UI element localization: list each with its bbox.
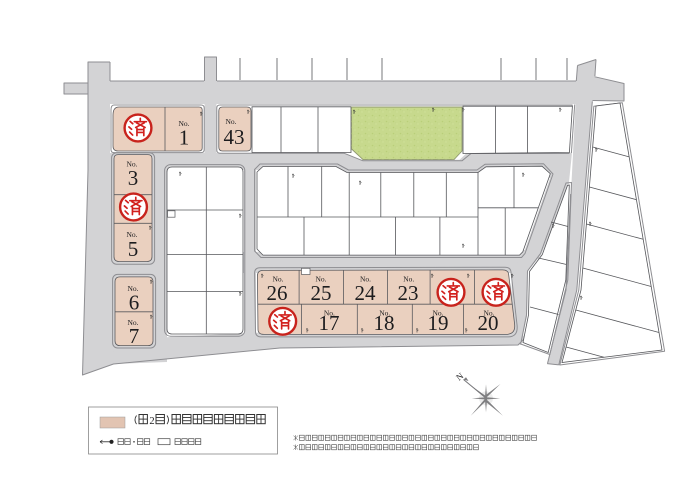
svg-text:25: 25 — [311, 281, 332, 305]
svg-text:2: 2 — [149, 416, 154, 427]
svg-text:6: 6 — [129, 291, 140, 315]
svg-text:3: 3 — [128, 166, 139, 190]
svg-text:24: 24 — [355, 281, 377, 305]
svg-text:19: 19 — [428, 311, 449, 335]
svg-text:23: 23 — [398, 281, 419, 305]
svg-text:1: 1 — [179, 126, 190, 150]
svg-text:20: 20 — [478, 311, 499, 335]
svg-text:5: 5 — [128, 237, 139, 261]
svg-text:17: 17 — [319, 311, 340, 335]
svg-text:7: 7 — [129, 324, 140, 348]
svg-text:N: N — [454, 370, 466, 382]
svg-text:43: 43 — [224, 125, 245, 149]
svg-text:18: 18 — [374, 311, 395, 335]
svg-text:26: 26 — [267, 281, 288, 305]
